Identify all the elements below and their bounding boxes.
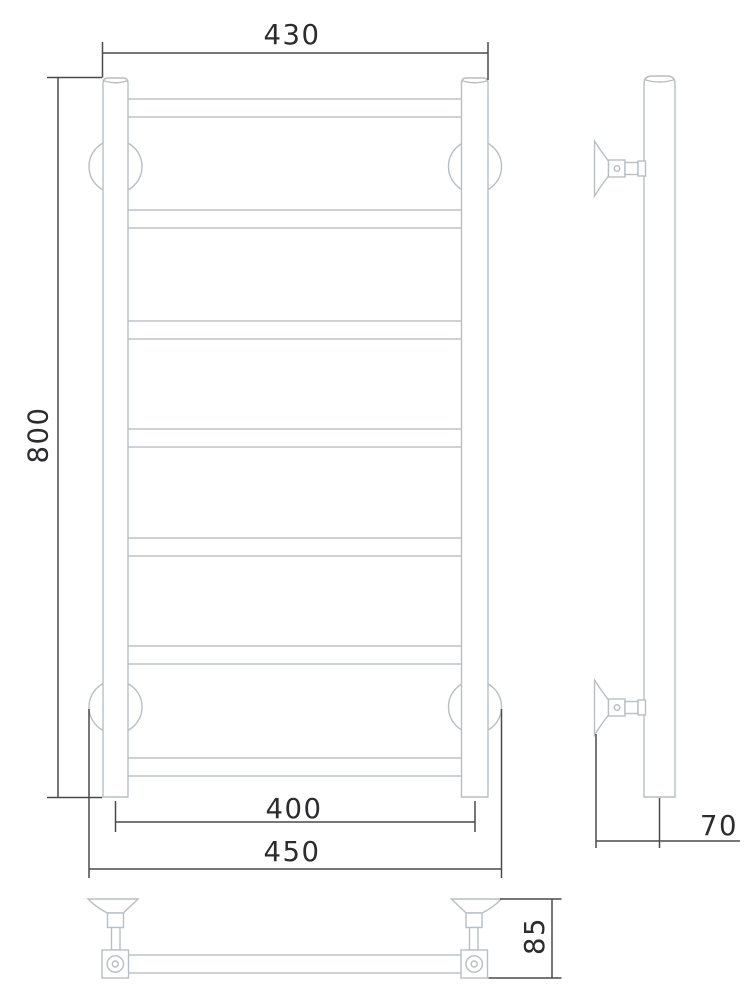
rail-rung — [127, 538, 463, 556]
rail-rung — [127, 646, 463, 664]
dimension-pipe-center-width-label: 400 — [266, 793, 323, 825]
dimension-bracket-depth-label: 85 — [519, 917, 551, 955]
rail-rung — [127, 321, 463, 339]
bracket-wall-plate — [595, 141, 609, 196]
front-view — [89, 78, 502, 797]
bracket-elbow — [102, 950, 129, 978]
bracket-stem — [625, 163, 638, 175]
bracket-stem — [112, 928, 121, 951]
rail-rung — [127, 210, 463, 228]
rail-rung — [127, 758, 463, 776]
dimension-pipe-center-width: 400 — [116, 793, 476, 832]
right-post — [462, 78, 489, 797]
bracket-wall-plate — [88, 899, 138, 913]
bracket-neck — [108, 913, 124, 928]
bracket-body — [609, 160, 626, 177]
bottom-view — [88, 899, 502, 978]
technical-drawing-page: 430 800 400 450 70 85 — [0, 0, 749, 999]
side-wall-bracket-top — [595, 141, 646, 196]
rail-rung — [127, 429, 463, 447]
bottom-tube — [126, 955, 463, 973]
dimension-overall-width: 430 — [103, 19, 489, 80]
bracket-collar — [638, 161, 646, 176]
rail-rungs — [127, 99, 463, 776]
dimension-overall-height-label: 800 — [23, 407, 55, 464]
dimension-overall-width-label: 430 — [264, 19, 321, 51]
dimension-bracket-width-label: 450 — [264, 836, 321, 868]
side-wall-bracket-bottom — [595, 680, 646, 735]
dimension-wall-offset-label: 70 — [700, 810, 738, 842]
rail-rung — [127, 99, 463, 117]
left-post — [103, 78, 128, 797]
side-post — [644, 76, 675, 797]
dimension-bracket-depth: 85 — [489, 899, 562, 978]
side-view — [595, 76, 676, 797]
towel-rail-drawing: 430 800 400 450 70 85 — [0, 0, 749, 999]
dimension-overall-height: 800 — [23, 78, 103, 798]
